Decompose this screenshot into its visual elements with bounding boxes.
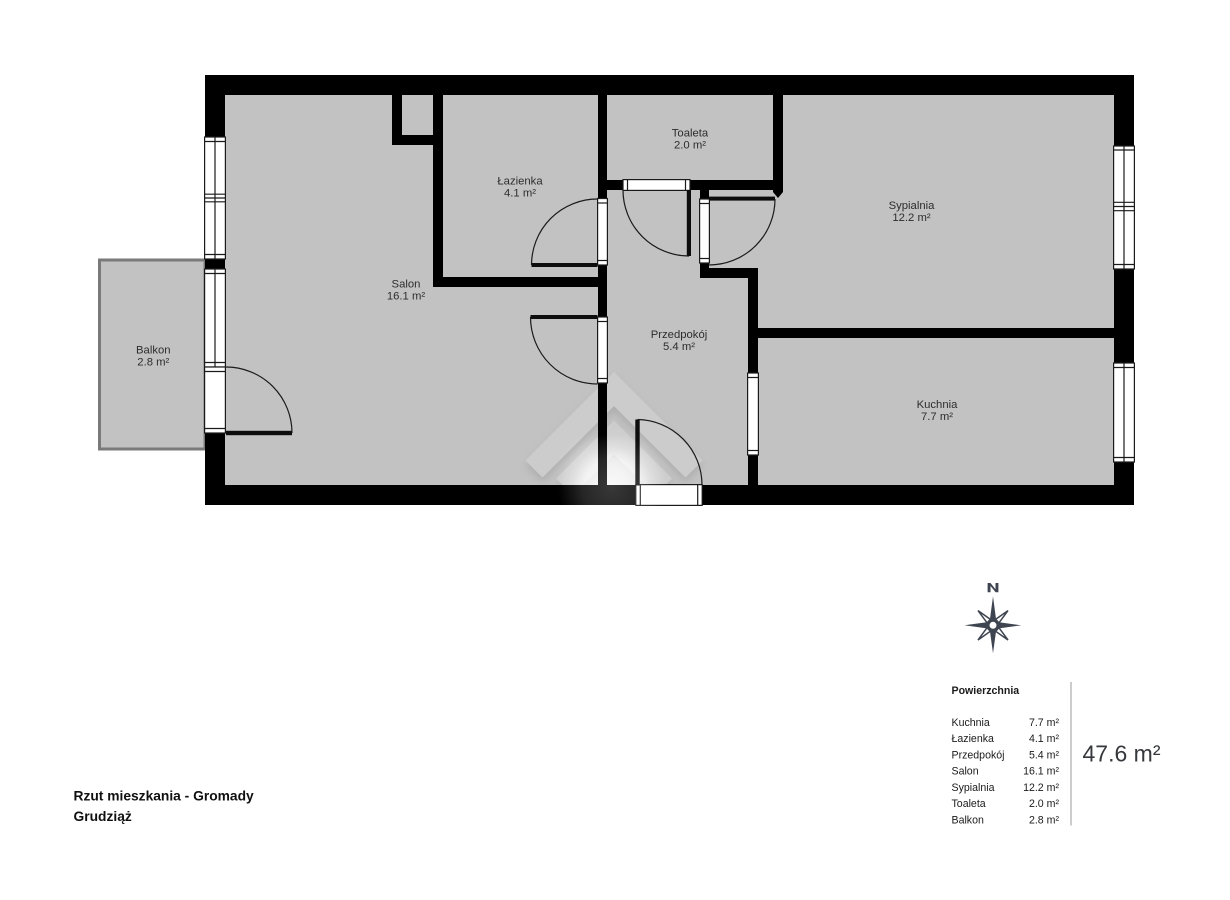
svg-text:2.0 m²: 2.0 m² xyxy=(674,140,706,152)
svg-text:Powierzchnia: Powierzchnia xyxy=(952,685,1020,697)
svg-text:Salon: Salon xyxy=(952,766,979,778)
svg-text:Przedpokój: Przedpokój xyxy=(651,329,708,341)
svg-text:Kuchnia: Kuchnia xyxy=(952,717,990,729)
svg-text:12.2 m²: 12.2 m² xyxy=(1023,782,1059,794)
svg-text:Łazienka: Łazienka xyxy=(497,176,543,188)
svg-text:Balkon: Balkon xyxy=(952,815,984,827)
svg-text:Salon: Salon xyxy=(392,279,421,291)
svg-text:Kuchnia: Kuchnia xyxy=(917,399,959,411)
svg-text:5.4 m²: 5.4 m² xyxy=(1029,749,1059,761)
svg-text:Sypialnia: Sypialnia xyxy=(952,782,995,794)
svg-text:Toaleta: Toaleta xyxy=(672,128,709,140)
svg-text:7.7 m²: 7.7 m² xyxy=(1029,717,1059,729)
svg-text:Grudziąż: Grudziąż xyxy=(74,809,132,824)
svg-text:Sypialnia: Sypialnia xyxy=(889,200,936,212)
svg-text:5.4 m²: 5.4 m² xyxy=(663,341,695,353)
svg-text:Toaleta: Toaleta xyxy=(952,798,986,810)
svg-text:2.0 m²: 2.0 m² xyxy=(1029,798,1059,810)
svg-text:12.2 m²: 12.2 m² xyxy=(892,212,931,224)
svg-text:16.1 m²: 16.1 m² xyxy=(1023,766,1059,778)
svg-text:Balkon: Balkon xyxy=(136,345,171,357)
svg-text:47.6 m²: 47.6 m² xyxy=(1083,741,1161,767)
svg-text:2.8 m²: 2.8 m² xyxy=(1029,815,1059,827)
svg-text:4.1 m²: 4.1 m² xyxy=(504,188,536,200)
svg-text:Łazienka: Łazienka xyxy=(952,733,995,745)
svg-text:7.7 m²: 7.7 m² xyxy=(921,411,953,423)
svg-text:16.1 m²: 16.1 m² xyxy=(387,291,426,303)
svg-text:Rzut mieszkania - Gromady: Rzut mieszkania - Gromady xyxy=(74,789,255,804)
svg-text:Przedpokój: Przedpokój xyxy=(952,749,1005,761)
svg-text:4.1 m²: 4.1 m² xyxy=(1029,733,1059,745)
svg-text:2.8 m²: 2.8 m² xyxy=(137,357,169,369)
